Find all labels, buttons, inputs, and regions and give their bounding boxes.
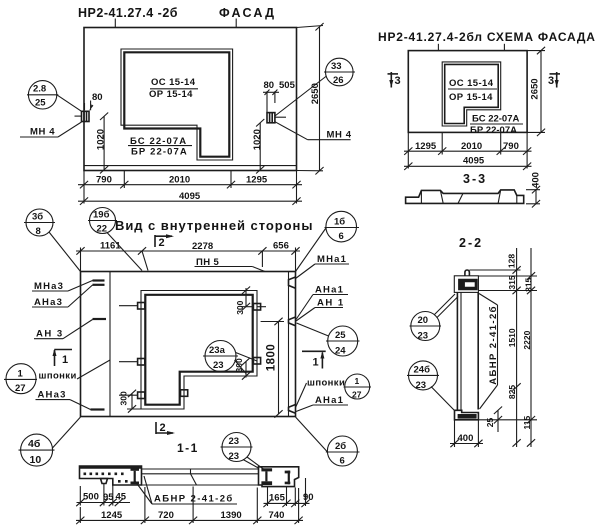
svg-text:25: 25 bbox=[485, 418, 495, 428]
svg-text:315: 315 bbox=[523, 277, 533, 291]
svg-text:23: 23 bbox=[229, 436, 240, 447]
svg-text:80: 80 bbox=[264, 80, 275, 91]
svg-text:2650: 2650 bbox=[310, 83, 321, 104]
svg-text:АНа3: АНа3 bbox=[34, 297, 63, 308]
svg-text:1020: 1020 bbox=[96, 129, 107, 150]
svg-text:500: 500 bbox=[83, 492, 99, 503]
svg-text:1: 1 bbox=[313, 357, 319, 369]
svg-text:33: 33 bbox=[331, 61, 342, 72]
svg-text:23а: 23а bbox=[209, 345, 226, 356]
svg-text:1020: 1020 bbox=[252, 129, 263, 150]
svg-text:АН 1: АН 1 bbox=[317, 298, 345, 309]
svg-text:8: 8 bbox=[36, 226, 41, 237]
svg-text:шпонки: шпонки bbox=[39, 371, 77, 382]
svg-text:2: 2 bbox=[159, 237, 165, 249]
svg-text:2: 2 bbox=[160, 422, 166, 434]
svg-text:ОР 15-14: ОР 15-14 bbox=[449, 92, 493, 103]
svg-text:ФАСАД: ФАСАД bbox=[219, 6, 276, 20]
svg-text:300: 300 bbox=[235, 300, 245, 314]
svg-text:БР 22-07А: БР 22-07А bbox=[131, 147, 188, 158]
svg-text:1510: 1510 bbox=[507, 328, 517, 347]
svg-text:27: 27 bbox=[352, 390, 362, 400]
svg-text:4095: 4095 bbox=[463, 156, 485, 167]
svg-text:1295: 1295 bbox=[415, 141, 437, 152]
svg-text:90: 90 bbox=[303, 492, 314, 503]
svg-text:БС 22-07А: БС 22-07А bbox=[472, 114, 520, 125]
svg-text:115: 115 bbox=[522, 415, 532, 429]
svg-text:790: 790 bbox=[503, 141, 519, 152]
svg-text:128: 128 bbox=[507, 254, 517, 268]
svg-text:АБНР 2-41-2б: АБНР 2-41-2б bbox=[154, 494, 234, 505]
svg-text:ОС 15-14: ОС 15-14 bbox=[151, 77, 196, 88]
svg-text:26: 26 bbox=[333, 75, 344, 86]
svg-text:315: 315 bbox=[507, 275, 517, 289]
svg-text:ОС 15-14: ОС 15-14 bbox=[449, 78, 494, 89]
svg-text:МНа1: МНа1 bbox=[317, 254, 347, 265]
svg-text:2278: 2278 bbox=[192, 241, 213, 252]
svg-text:1: 1 bbox=[18, 369, 24, 380]
svg-text:1161: 1161 bbox=[100, 241, 121, 252]
svg-text:3: 3 bbox=[548, 75, 554, 87]
svg-text:400: 400 bbox=[531, 172, 542, 188]
svg-text:25: 25 bbox=[35, 98, 46, 109]
svg-text:23: 23 bbox=[418, 331, 429, 342]
svg-text:95: 95 bbox=[103, 492, 114, 503]
svg-text:740: 740 bbox=[269, 510, 285, 521]
svg-text:10: 10 bbox=[30, 454, 42, 466]
svg-text:4б: 4б bbox=[28, 438, 41, 450]
svg-text:400: 400 bbox=[458, 433, 474, 444]
svg-text:1: 1 bbox=[62, 354, 68, 366]
svg-text:1245: 1245 bbox=[101, 510, 123, 521]
svg-text:2010: 2010 bbox=[461, 141, 482, 152]
svg-text:1-1: 1-1 bbox=[177, 441, 199, 455]
svg-text:НР2-41.27.4 -2б: НР2-41.27.4 -2б bbox=[78, 6, 178, 20]
svg-text:АНа1: АНа1 bbox=[315, 395, 344, 406]
svg-text:24б: 24б bbox=[414, 365, 431, 376]
svg-text:19б: 19б bbox=[93, 210, 110, 221]
svg-text:656: 656 bbox=[273, 241, 289, 252]
svg-text:2650: 2650 bbox=[530, 78, 541, 99]
svg-text:МН 4: МН 4 bbox=[327, 130, 352, 141]
svg-text:45: 45 bbox=[116, 492, 127, 503]
svg-text:1390: 1390 bbox=[221, 510, 242, 521]
svg-text:23: 23 bbox=[416, 380, 427, 391]
svg-text:ОР 15-14: ОР 15-14 bbox=[149, 89, 193, 100]
svg-text:24: 24 bbox=[335, 346, 346, 357]
svg-text:2.8: 2.8 bbox=[33, 84, 46, 95]
svg-text:6: 6 bbox=[340, 456, 345, 467]
svg-text:МН 4: МН 4 bbox=[30, 127, 55, 138]
svg-text:4095: 4095 bbox=[179, 191, 201, 202]
svg-text:1б: 1б bbox=[334, 217, 345, 228]
svg-text:25: 25 bbox=[335, 330, 346, 341]
svg-text:АНа1: АНа1 bbox=[315, 285, 344, 296]
svg-text:3б: 3б bbox=[32, 212, 43, 223]
svg-text:80: 80 bbox=[92, 92, 103, 103]
svg-text:27: 27 bbox=[15, 383, 26, 394]
svg-text:БР 22-07А: БР 22-07А bbox=[470, 125, 517, 136]
svg-text:2010: 2010 bbox=[169, 175, 190, 186]
svg-text:Вид с внутренней стороны: Вид с внутренней стороны bbox=[115, 218, 313, 233]
svg-text:20: 20 bbox=[418, 315, 429, 326]
svg-text:825: 825 bbox=[507, 385, 517, 399]
svg-text:НР2-41.27.4-2бл СХЕМА ФАСАДА: НР2-41.27.4-2бл СХЕМА ФАСАДА bbox=[378, 30, 596, 44]
svg-text:22: 22 bbox=[97, 224, 108, 235]
svg-text:300: 300 bbox=[119, 391, 129, 405]
svg-text:505: 505 bbox=[279, 80, 296, 91]
svg-text:МНа3: МНа3 bbox=[34, 281, 64, 292]
svg-text:АНа3: АНа3 bbox=[38, 390, 67, 401]
svg-text:1800: 1800 bbox=[266, 344, 278, 372]
svg-text:23: 23 bbox=[229, 451, 240, 462]
svg-text:1295: 1295 bbox=[246, 175, 268, 186]
svg-text:6: 6 bbox=[339, 231, 344, 242]
svg-text:шпонки: шпонки bbox=[307, 378, 345, 389]
svg-text:720: 720 bbox=[158, 510, 174, 521]
svg-text:3: 3 bbox=[395, 75, 401, 87]
svg-text:АН 3: АН 3 bbox=[36, 329, 64, 340]
svg-text:2220: 2220 bbox=[522, 330, 532, 349]
svg-text:1: 1 bbox=[355, 376, 360, 386]
svg-text:3-3: 3-3 bbox=[463, 172, 487, 186]
svg-text:790: 790 bbox=[96, 175, 112, 186]
svg-text:2б: 2б bbox=[335, 441, 346, 452]
svg-text:2-2: 2-2 bbox=[459, 236, 483, 250]
svg-text:23: 23 bbox=[213, 360, 224, 371]
svg-text:165: 165 bbox=[269, 493, 286, 504]
